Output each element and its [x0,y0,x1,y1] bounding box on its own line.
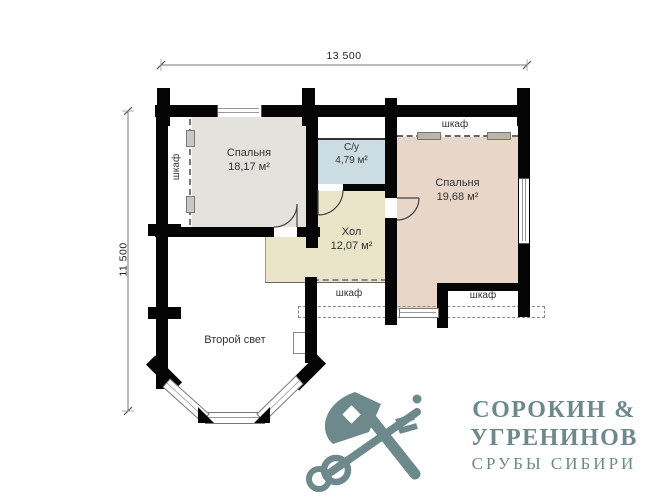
logo: СОРОКИН & УГРЕНИНОВ СРУБЫ СИБИРИ [293,384,667,502]
room-area: 19,68 м² [397,191,518,205]
closet-label-top-right: шкаф [420,119,490,132]
dimension-height-label: 11 500 [118,238,131,282]
room-name: Хол [306,226,397,240]
logo-line2: УГРЕНИНОВ [448,424,660,452]
dimension-width-label: 13 500 [309,50,379,63]
closet-label-left-vertical: шкаф [171,150,185,184]
room-area: 18,17 м² [192,161,306,175]
logo-line1: СОРОКИН & [448,396,660,424]
room-name: Спальня [192,147,306,161]
room-area: 12,07 м² [306,240,397,254]
room-label-bedroom-left: Спальня 18,17 м² [192,147,306,175]
key-bit [396,417,414,422]
door-arc-bedroom-left [274,204,297,227]
room-name: С/у [318,142,385,155]
key-bow-ring [309,469,329,489]
second-light-label: Второй свет [175,334,295,348]
bay-miter-left [198,407,214,423]
closet-label-hall: шкаф [314,288,384,301]
room-name: Спальня [397,177,518,191]
room-label-bedroom-right: Спальня 19,68 м² [397,177,518,205]
key-tip [413,395,422,404]
logo-line3: СРУБЫ СИБИРИ [448,453,660,475]
closet-label-bottom-right: шкаф [448,290,518,303]
floor-plan-canvas: 13 500 11 500 Спальня 18,17 м² С/у 4,79 … [0,0,667,502]
room-area: 4,79 м² [318,155,385,168]
room-label-hall: Хол 12,07 м² [306,226,397,254]
room-label-bathroom: С/у 4,79 м² [318,142,385,167]
door-arc-bathroom [318,190,343,215]
logo-axe-key-icon [293,386,443,502]
